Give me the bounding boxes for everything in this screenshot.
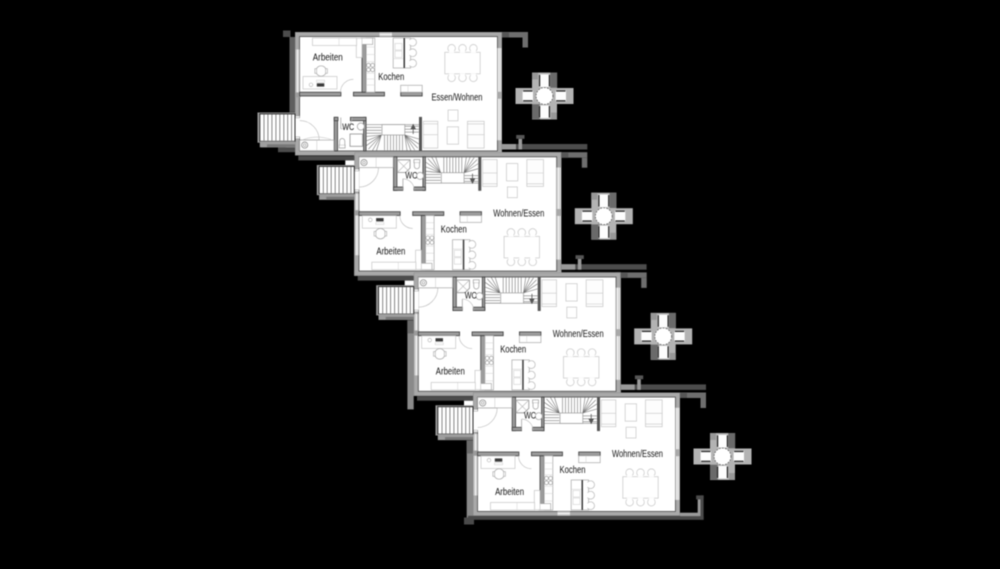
svg-text:Arbeiten: Arbeiten [376,247,405,258]
svg-text:WC: WC [524,411,536,421]
svg-text:WC: WC [465,291,477,301]
svg-text:WC: WC [342,122,354,132]
svg-text:WC: WC [405,170,417,180]
svg-text:Kochen: Kochen [560,465,586,476]
svg-text:Essen/Wohnen: Essen/Wohnen [432,92,483,103]
svg-text:Wohnen/Essen: Wohnen/Essen [612,449,663,460]
svg-text:Wohnen/Essen: Wohnen/Essen [493,209,544,220]
svg-text:Kochen: Kochen [500,345,526,356]
svg-text:Arbeiten: Arbeiten [436,367,465,378]
svg-text:Kochen: Kochen [441,225,467,236]
svg-text:Wohnen/Essen: Wohnen/Essen [553,329,604,340]
svg-text:Kochen: Kochen [378,72,404,83]
svg-text:Arbeiten: Arbeiten [313,53,343,64]
svg-text:Arbeiten: Arbeiten [495,487,524,498]
